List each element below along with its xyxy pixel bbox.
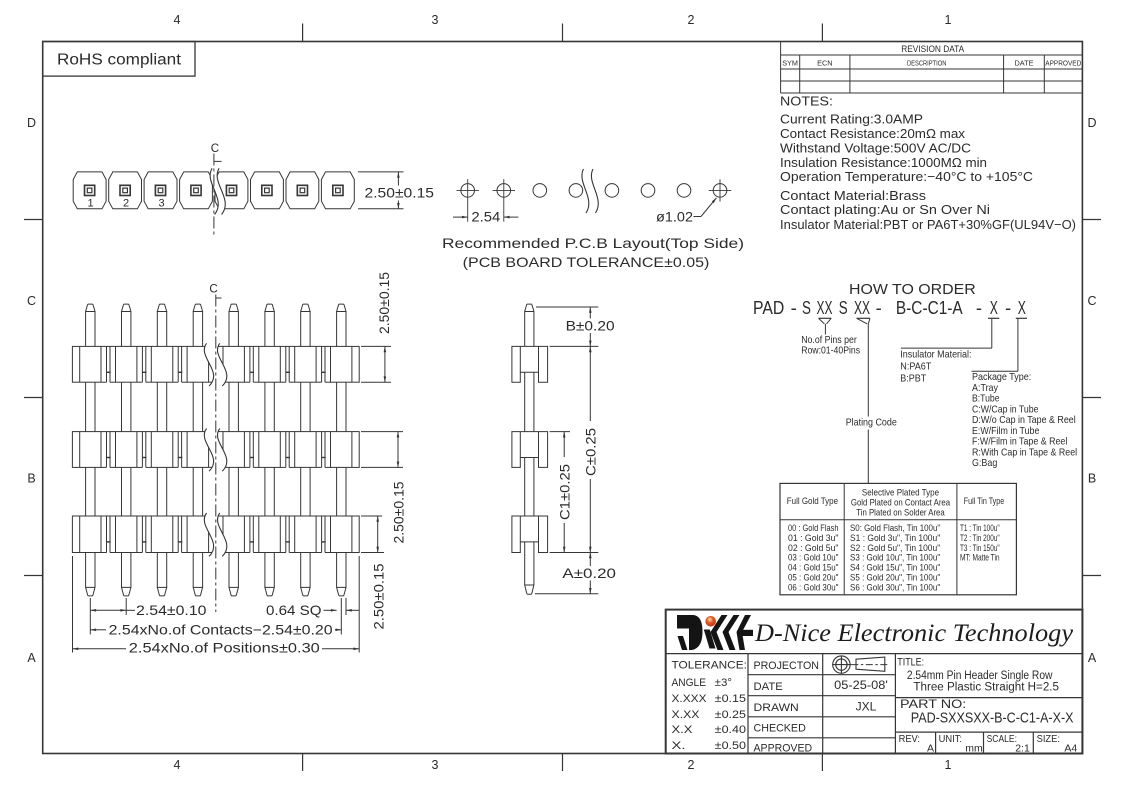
svg-text:-: - (1005, 297, 1011, 318)
svg-text:2.54xNo.of Contacts−2.54±0.20: 2.54xNo.of Contacts−2.54±0.20 (109, 622, 333, 638)
svg-text:C1±0.25: C1±0.25 (557, 464, 573, 520)
svg-text:S0: Gold Flash, Tin 100u": S0: Gold Flash, Tin 100u" (850, 523, 940, 533)
svg-text:Contact Material:Brass: Contact Material:Brass (780, 188, 927, 203)
svg-text:B±0.20: B±0.20 (566, 318, 615, 334)
svg-text:D: D (27, 116, 36, 130)
svg-text:A: A (27, 651, 36, 665)
svg-text:S3 : Gold 10u", Tin 100u": S3 : Gold 10u", Tin 100u" (850, 553, 940, 563)
svg-text:No.of Pins per: No.of Pins per (801, 335, 857, 346)
svg-text:Row:01-40Pins: Row:01-40Pins (801, 346, 860, 357)
svg-text:Full Gold Type: Full Gold Type (787, 496, 838, 507)
svg-text:DATE: DATE (754, 681, 783, 693)
svg-text:S4 : Gold 15u", Tin 100u": S4 : Gold 15u", Tin 100u" (850, 563, 940, 573)
svg-text:Current Rating:3.0AMP: Current Rating:3.0AMP (780, 112, 923, 127)
svg-text:ø1.02: ø1.02 (656, 209, 693, 225)
svg-text:X: X (990, 297, 998, 318)
svg-text:TOLERANCE:: TOLERANCE: (672, 660, 747, 672)
svg-text:JXL: JXL (856, 702, 877, 714)
svg-text:-: - (876, 297, 882, 318)
svg-text:±3°: ±3° (715, 677, 732, 689)
svg-text:D: D (1087, 116, 1096, 130)
svg-text:2.50±0.15: 2.50±0.15 (376, 272, 392, 334)
svg-text:HOW TO ORDER: HOW TO ORDER (849, 282, 976, 298)
svg-text:C: C (27, 294, 36, 308)
svg-text:2.50±0.15: 2.50±0.15 (365, 184, 435, 200)
svg-text:1: 1 (945, 13, 952, 27)
svg-text:C±0.25: C±0.25 (583, 428, 599, 476)
svg-text:Operation Temperature:−40°C: Operation Temperature:−40°C to +105°C (780, 169, 1033, 184)
svg-text:A: A (1088, 651, 1097, 665)
svg-text:±0.40: ±0.40 (715, 724, 746, 736)
svg-text:A: A (927, 743, 934, 755)
svg-text:1: 1 (88, 197, 94, 209)
svg-text:CHECKED: CHECKED (754, 723, 806, 735)
svg-text:REVISION DATA: REVISION DATA (901, 44, 964, 54)
svg-text:C: C (211, 143, 219, 155)
svg-text:B-C-C1-A: B-C-C1-A (896, 297, 963, 318)
svg-text:Plating Code: Plating Code (846, 418, 897, 429)
svg-text:2.50±0.15: 2.50±0.15 (391, 481, 407, 543)
svg-text:Contact plating:Au or Sn O: Contact plating:Au or Sn Over Ni (780, 202, 990, 217)
svg-text:X.X: X.X (672, 724, 694, 736)
svg-text:E:W/Film in Tube: E:W/Film in Tube (972, 426, 1040, 437)
svg-text:S: S (802, 297, 811, 318)
svg-text:±0.25: ±0.25 (715, 709, 746, 721)
svg-text:±0.15: ±0.15 (715, 693, 746, 705)
svg-text:S6 : Gold 30u", Tin 100u": S6 : Gold 30u", Tin 100u" (850, 583, 940, 593)
svg-text:-: - (976, 297, 982, 318)
svg-text:A:Tray: A:Tray (972, 383, 999, 394)
svg-text:T2 : Tin 200u": T2 : Tin 200u" (960, 533, 1000, 543)
svg-text:DESCRIPTION: DESCRIPTION (907, 58, 947, 67)
svg-text:Insulator Material:PBT or PA6: Insulator Material:PBT or PA6T+30%GF(UL9… (780, 217, 1076, 232)
svg-text:B: B (27, 472, 35, 486)
svg-text:SCALE:: SCALE: (987, 733, 1017, 745)
svg-text:05 : Gold 20u": 05 : Gold 20u" (788, 573, 839, 583)
svg-text:04 : Gold 15u": 04 : Gold 15u" (788, 563, 839, 573)
svg-text:mm: mm (965, 743, 983, 755)
svg-text:0.64 SQ: 0.64 SQ (266, 602, 322, 618)
svg-text:4: 4 (174, 13, 181, 27)
svg-text:-: - (791, 297, 797, 318)
svg-text:APPROVED: APPROVED (1045, 58, 1081, 67)
svg-text:X.XXX: X.XXX (672, 693, 707, 705)
svg-text:S1 : Gold 3u", Tin 100u": S1 : Gold 3u", Tin 100u" (850, 533, 940, 543)
svg-text:Three Plastic Straight H=2.5: Three Plastic Straight H=2.5 (913, 681, 1059, 693)
svg-text:03 : Gold 10u": 03 : Gold 10u" (788, 553, 839, 563)
svg-text:±0.50: ±0.50 (715, 740, 746, 752)
svg-text:PAD-SXXSXX-B-C-C1-A-X-X: PAD-SXXSXX-B-C-C1-A-X-X (911, 710, 1074, 727)
svg-text:00 : Gold Flash: 00 : Gold Flash (788, 523, 839, 533)
svg-text:B: B (1088, 472, 1096, 486)
svg-text:02 : Gold 5u": 02 : Gold 5u" (788, 543, 839, 553)
svg-text:2.54±0.10: 2.54±0.10 (136, 602, 207, 618)
svg-text:APPROVED: APPROVED (754, 743, 813, 755)
svg-text:Withstand Voltage:500V AC/DC: Withstand Voltage:500V AC/DC (780, 141, 971, 156)
svg-text:PAD: PAD (753, 297, 784, 318)
svg-text:Contact Resistance:20mΩ max: Contact Resistance:20mΩ max (780, 126, 966, 141)
svg-text:SIZE:: SIZE: (1037, 733, 1060, 745)
svg-text:S5 : Gold 20u", Tin 100u": S5 : Gold 20u", Tin 100u" (850, 573, 940, 583)
svg-text:Full Tin Type: Full Tin Type (964, 496, 1004, 507)
svg-text:D-Nice Electronic Technology: D-Nice Electronic Technology (754, 618, 1074, 647)
svg-text:XX: XX (817, 297, 833, 318)
svg-text:SYM: SYM (782, 58, 798, 67)
svg-text:ECN: ECN (817, 58, 832, 67)
svg-text:Insulation Resistance:1000MΩ: Insulation Resistance:1000MΩ min (780, 155, 987, 170)
svg-text:S2 : Gold 5u", Tin 100u": S2 : Gold 5u", Tin 100u" (850, 543, 940, 553)
svg-text:PROJECTON: PROJECTON (754, 660, 820, 672)
svg-text:ANGLE: ANGLE (672, 677, 707, 689)
svg-text:3: 3 (158, 197, 164, 209)
svg-text:N:PA6T: N:PA6T (900, 362, 932, 373)
svg-text:T1 : Tin 100u": T1 : Tin 100u" (960, 523, 1000, 533)
svg-text:2: 2 (688, 758, 695, 772)
svg-text:D:W/o Cap in Tape & Reel: D:W/o Cap in Tape & Reel (972, 415, 1076, 426)
svg-text:2.54xNo.of Positions±0.30: 2.54xNo.of Positions±0.30 (129, 640, 320, 656)
svg-text:F:W/Film in Tape & Reel: F:W/Film in Tape & Reel (972, 437, 1067, 448)
svg-text:G:Bag: G:Bag (972, 458, 998, 469)
svg-text:S: S (839, 297, 848, 318)
svg-text:(PCB BOARD TOLERANCE±0.05): (PCB BOARD TOLERANCE±0.05) (463, 254, 710, 270)
svg-text:2:1: 2:1 (1015, 743, 1030, 755)
svg-text:Tin Plated on Solder Area: Tin Plated on Solder Area (856, 508, 945, 519)
svg-text:RoHS compliant: RoHS compliant (57, 52, 182, 69)
svg-text:NOTES:: NOTES: (780, 94, 833, 109)
svg-text:2: 2 (688, 13, 695, 27)
svg-text:01 : Gold 3u": 01 : Gold 3u" (788, 533, 839, 543)
svg-text:XX: XX (854, 297, 870, 318)
svg-text:1: 1 (945, 758, 952, 772)
svg-text:R:With Cap in Tape & Reel: R:With Cap in Tape & Reel (972, 447, 1077, 458)
svg-text:C:W/Cap in Tube: C:W/Cap in Tube (972, 404, 1039, 415)
svg-text:2: 2 (123, 197, 129, 209)
svg-text:3: 3 (432, 13, 439, 27)
svg-text:C: C (209, 284, 217, 296)
svg-text:A4: A4 (1064, 743, 1077, 755)
svg-text:Package Type:: Package Type: (972, 372, 1031, 383)
svg-text:2.50±0.15: 2.50±0.15 (371, 563, 387, 629)
svg-text:Insulator Material:: Insulator Material: (900, 350, 971, 361)
svg-text:T3 : Tin 150u": T3 : Tin 150u" (960, 543, 1000, 553)
svg-text:B:Tube: B:Tube (972, 394, 1000, 405)
svg-text:X.: X. (672, 740, 686, 752)
svg-text:Recommended P.C.B Layout(Top: Recommended P.C.B Layout(Top Side) (442, 235, 744, 251)
svg-text:3: 3 (432, 758, 439, 772)
svg-text:MT: Matte Tin: MT: Matte Tin (960, 553, 1000, 563)
svg-text:06 : Gold 30u": 06 : Gold 30u" (788, 583, 839, 593)
svg-text:2.54: 2.54 (471, 209, 500, 225)
svg-text:TITLE:: TITLE: (897, 657, 924, 669)
svg-text:DATE: DATE (1015, 58, 1034, 67)
svg-text:X.XX: X.XX (672, 709, 700, 721)
svg-text:REV:: REV: (899, 733, 920, 745)
svg-text:B:PBT: B:PBT (900, 373, 927, 384)
svg-text:UNIT:: UNIT: (939, 733, 962, 745)
svg-text:X: X (1018, 297, 1026, 318)
svg-text:4: 4 (174, 758, 181, 772)
svg-text:05-25-08': 05-25-08' (834, 680, 888, 692)
svg-text:DRAWN: DRAWN (754, 702, 799, 714)
svg-text:A±0.20: A±0.20 (562, 565, 616, 581)
svg-text:Gold Plated on Contact Area: Gold Plated on Contact Area (851, 497, 951, 508)
svg-text:C: C (1087, 294, 1096, 308)
